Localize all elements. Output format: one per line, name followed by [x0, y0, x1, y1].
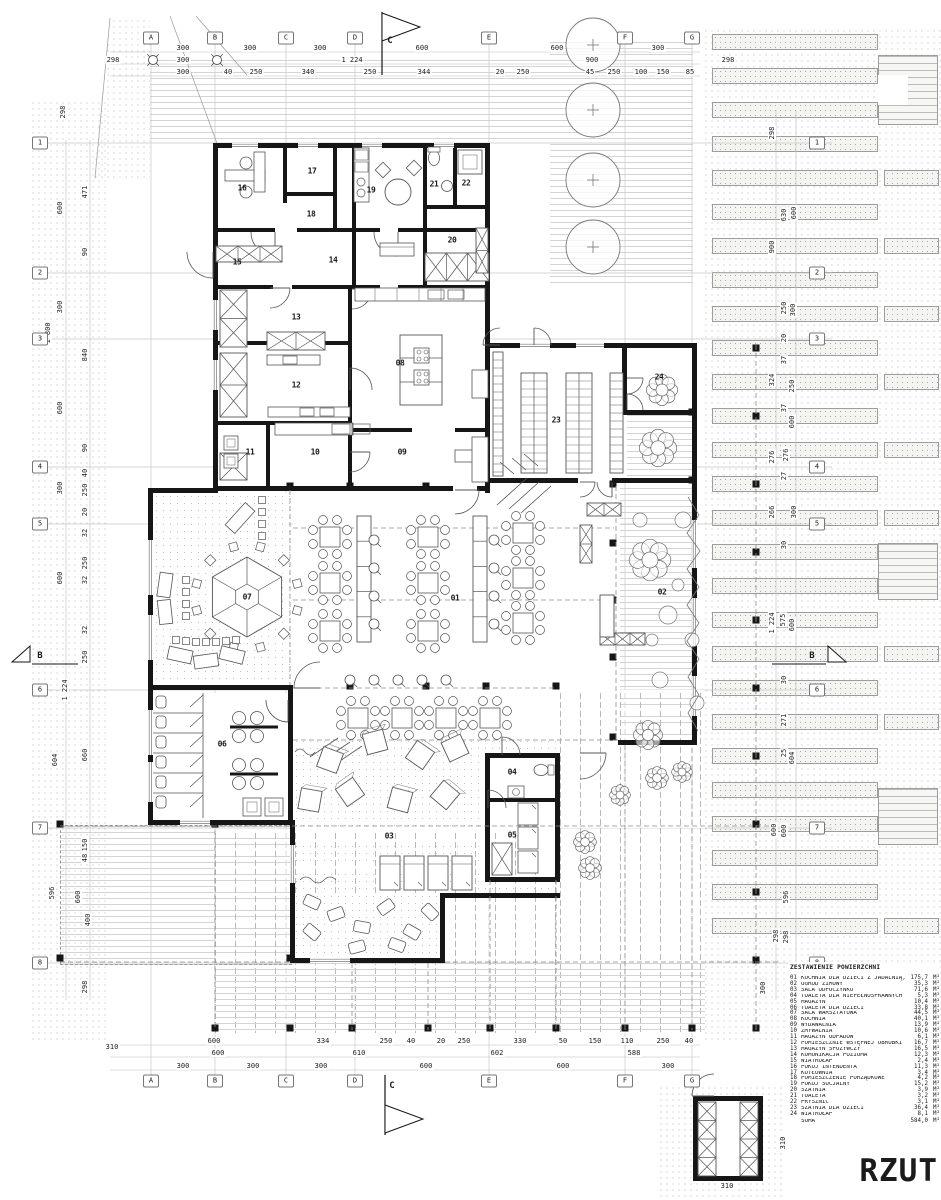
- dimension-label: 298: [772, 929, 780, 944]
- dimension-label: 300: [313, 44, 328, 52]
- floor-plan-canvas: 3003003006006003003001 22490029829830040…: [0, 0, 941, 1200]
- grid-bubble-row-4: 4: [809, 461, 825, 474]
- room-number-07: 07: [243, 593, 252, 602]
- dimension-label: 588: [627, 1049, 642, 1057]
- dimension-label: 600: [415, 44, 430, 52]
- dimension-label: 250: [607, 68, 622, 76]
- dimension-label: 298: [81, 980, 89, 995]
- dimension-label: 471: [81, 185, 89, 200]
- room-number-18: 18: [307, 210, 316, 219]
- dimension-label: 300: [176, 1062, 191, 1070]
- dimension-label: 900: [768, 240, 776, 255]
- dimension-label: 300: [651, 44, 666, 52]
- room-number-16: 16: [238, 184, 247, 193]
- room-number-02: 02: [658, 588, 667, 597]
- dimension-label: 1 224: [340, 56, 363, 64]
- room-number-03: 03: [385, 832, 394, 841]
- dimension-label: 334: [316, 1037, 331, 1045]
- dimension-label: 300: [176, 44, 191, 52]
- dimension-label: 300: [176, 68, 191, 76]
- dimension-label: 40: [223, 68, 233, 76]
- section-label-B: B: [809, 651, 814, 661]
- dimension-label: 340: [301, 68, 316, 76]
- room-number-11: 11: [246, 448, 255, 457]
- dimension-label: 250: [780, 301, 788, 316]
- grid-bubble-col-C: C: [278, 1075, 294, 1088]
- grid-bubble-col-C: C: [278, 32, 294, 45]
- grid-bubble-row-2: 2: [809, 267, 825, 280]
- dimension-label: 600: [780, 824, 788, 839]
- dimension-label: 250: [81, 483, 89, 498]
- dimension-label: 310: [779, 1136, 787, 1151]
- room-number-04: 04: [508, 768, 517, 777]
- dimension-label: 20: [780, 333, 788, 343]
- legend-row: 24WIATROŁAP8,1M²: [790, 1112, 940, 1118]
- grid-bubble-col-E: E: [481, 1075, 497, 1088]
- legend-room-area: 584,0: [906, 1119, 928, 1125]
- grid-bubble-row-2: 2: [32, 267, 48, 280]
- grid-bubble-row-6: 6: [809, 684, 825, 697]
- legend-room-name: WIATROŁAP: [801, 1112, 906, 1118]
- dimension-label: 37: [780, 355, 788, 365]
- grid-bubble-col-A: A: [143, 1075, 159, 1088]
- grid-bubble-row-5: 5: [809, 518, 825, 531]
- room-number-15: 15: [233, 258, 242, 267]
- dimension-label: 310: [105, 1043, 120, 1051]
- dimension-label: 600: [556, 1062, 571, 1070]
- grid-bubble-row-6: 6: [32, 684, 48, 697]
- legend-room-no: 24: [790, 1112, 801, 1118]
- grid-bubble-col-E: E: [481, 32, 497, 45]
- dimension-label: 50: [558, 1037, 568, 1045]
- dimension-label: 32: [81, 625, 89, 635]
- legend-room-name: SUMA: [801, 1119, 906, 1125]
- dimension-label: 300: [759, 981, 767, 996]
- room-number-06: 06: [218, 740, 227, 749]
- dimension-label: 298: [721, 56, 736, 64]
- dimension-label: 324: [768, 373, 776, 388]
- room-number-08: 08: [396, 359, 405, 368]
- dimension-label: 298: [782, 930, 790, 945]
- dimension-label: 20: [436, 1037, 446, 1045]
- dimension-label: 150: [656, 68, 671, 76]
- dimension-label: 300: [176, 56, 191, 64]
- dimension-label: 300: [790, 505, 798, 520]
- dimension-label: 266: [768, 505, 776, 520]
- dimension-label: 344: [417, 68, 432, 76]
- grid-bubble-col-B: B: [207, 1075, 223, 1088]
- room-number-17: 17: [308, 167, 317, 176]
- dimension-label: 276: [782, 448, 790, 463]
- dimension-label: 250: [457, 1037, 472, 1045]
- legend-unit: M²: [928, 1119, 940, 1125]
- room-number-19: 19: [367, 186, 376, 195]
- dimension-label: 300: [789, 303, 797, 318]
- dimension-label: 298: [106, 56, 121, 64]
- dimension-label: 32: [81, 528, 89, 538]
- room-number-22: 22: [462, 179, 471, 188]
- room-number-10: 10: [311, 448, 320, 457]
- dimension-label: 600: [56, 401, 64, 416]
- dimension-label: 30: [780, 675, 788, 685]
- dimension-label: 600: [419, 1062, 434, 1070]
- dimension-label: 596: [48, 886, 56, 901]
- dimension-label: 298: [768, 126, 776, 141]
- grid-bubble-col-F: F: [617, 32, 633, 45]
- dimension-label: 250: [516, 68, 531, 76]
- dimension-label: 250: [788, 379, 796, 394]
- dimension-label: 27: [780, 471, 788, 481]
- grid-bubble-row-3: 3: [809, 333, 825, 346]
- room-number-20: 20: [448, 236, 457, 245]
- dimension-label: 25: [780, 748, 788, 758]
- section-label-C: C: [389, 1081, 394, 1091]
- dimension-label: 600: [56, 201, 64, 216]
- dimension-label: 300: [243, 44, 258, 52]
- dimension-label: 40: [684, 1037, 694, 1045]
- dimension-label: 310: [720, 1182, 735, 1190]
- area-schedule-title: ZESTAWIENIE POWIERZCHNI: [790, 964, 940, 971]
- dimension-label: 600: [211, 1049, 226, 1057]
- area-schedule-rows: 01KUCHNIA DLA DZIECI Z JADALNIĄ,175,7M²0…: [790, 976, 940, 1125]
- dimension-label: 250: [379, 1037, 394, 1045]
- dimension-label: 330: [513, 1037, 528, 1045]
- room-number-23: 23: [552, 416, 561, 425]
- dimension-label: 600: [56, 571, 64, 586]
- grid-bubble-row-7: 7: [809, 822, 825, 835]
- dimension-label: 840: [81, 348, 89, 363]
- room-number-05: 05: [508, 831, 517, 840]
- dimension-label: 276: [768, 450, 776, 465]
- grid-bubble-row-1: 1: [809, 137, 825, 150]
- dimension-label: 660: [81, 748, 89, 763]
- room-number-09: 09: [398, 448, 407, 457]
- dimension-label: 250: [81, 650, 89, 665]
- dimension-label: 90: [81, 443, 89, 453]
- dimension-label: 610: [352, 1049, 367, 1057]
- dimension-label: 40: [406, 1037, 416, 1045]
- dimension-label: 100: [634, 68, 649, 76]
- dimension-label: 596: [782, 890, 790, 905]
- dimension-label: 900: [585, 56, 600, 64]
- grid-bubble-row-4: 4: [32, 461, 48, 474]
- dimension-label: 604: [51, 753, 59, 768]
- dimension-label: 602: [490, 1049, 505, 1057]
- dimension-label: 110: [620, 1037, 635, 1045]
- dimension-label: 300: [56, 300, 64, 315]
- drawing-title: RZUT: [788, 1154, 938, 1188]
- grid-bubble-row-3: 3: [32, 333, 48, 346]
- room-number-14: 14: [329, 256, 338, 265]
- dimension-label: 600: [74, 890, 82, 905]
- legend-room-no: [790, 1119, 801, 1125]
- dimension-label: 30: [780, 540, 788, 550]
- grid-bubble-row-8: 8: [32, 957, 48, 970]
- room-number-12: 12: [292, 381, 301, 390]
- dimension-label: 298: [59, 105, 67, 120]
- dimension-label: 20: [81, 507, 89, 517]
- dimension-label: 90: [81, 247, 89, 257]
- dimension-label: 600: [788, 618, 796, 633]
- dimension-label: 300: [314, 1062, 329, 1070]
- dimension-label: 271: [780, 713, 788, 728]
- dimension-label: 37: [780, 403, 788, 413]
- dimension-label: 600: [207, 1037, 222, 1045]
- grid-bubble-col-D: D: [347, 1075, 363, 1088]
- dimension-label: 630: [780, 208, 788, 223]
- dimension-label: 150: [81, 838, 89, 853]
- dimension-label: 1 224: [768, 611, 776, 634]
- dimension-label: 40: [81, 468, 89, 478]
- room-number-01: 01: [451, 594, 460, 603]
- grid-bubble-row-5: 5: [32, 518, 48, 531]
- dimension-label: 300: [56, 481, 64, 496]
- grid-bubble-col-G: G: [684, 1075, 700, 1088]
- section-label-B: B: [37, 651, 42, 661]
- grid-bubble-col-B: B: [207, 32, 223, 45]
- dimension-label: 85: [685, 68, 695, 76]
- dimension-label: 250: [249, 68, 264, 76]
- dimension-label: 604: [788, 751, 796, 766]
- dimension-label: 400: [84, 913, 92, 928]
- dimension-label: 150: [588, 1037, 603, 1045]
- dimension-label: 32: [81, 575, 89, 585]
- dimension-label: 1 224: [61, 678, 69, 701]
- dimension-label: 600: [770, 823, 778, 838]
- dimension-label: 20: [495, 68, 505, 76]
- dimension-label: 300: [661, 1062, 676, 1070]
- grid-bubble-col-A: A: [143, 32, 159, 45]
- dimension-label: 600: [788, 415, 796, 430]
- legend-unit: M²: [928, 1112, 940, 1118]
- grid-bubble-col-F: F: [617, 1075, 633, 1088]
- section-label-C: C: [387, 36, 392, 46]
- area-schedule: ZESTAWIENIE POWIERZCHNI 01KUCHNIA DLA DZ…: [788, 962, 940, 1127]
- dimension-label: 600: [790, 206, 798, 221]
- grid-bubble-col-G: G: [684, 32, 700, 45]
- dimension-label: 45: [585, 68, 595, 76]
- grid-bubble-row-7: 7: [32, 822, 48, 835]
- dimension-label: 250: [656, 1037, 671, 1045]
- room-number-21: 21: [430, 180, 439, 189]
- dimension-label: 48: [81, 853, 89, 863]
- dimension-label: 575: [779, 613, 787, 628]
- dimension-label: 300: [246, 1062, 261, 1070]
- grid-bubble-col-D: D: [347, 32, 363, 45]
- dimension-label: 250: [81, 556, 89, 571]
- grid-bubble-row-1: 1: [32, 137, 48, 150]
- dimension-label: 250: [363, 68, 378, 76]
- room-number-24: 24: [655, 373, 664, 382]
- room-number-13: 13: [292, 313, 301, 322]
- legend-total-row: SUMA584,0M²: [790, 1119, 940, 1125]
- legend-room-area: 8,1: [906, 1112, 928, 1118]
- dimension-label: 600: [550, 44, 565, 52]
